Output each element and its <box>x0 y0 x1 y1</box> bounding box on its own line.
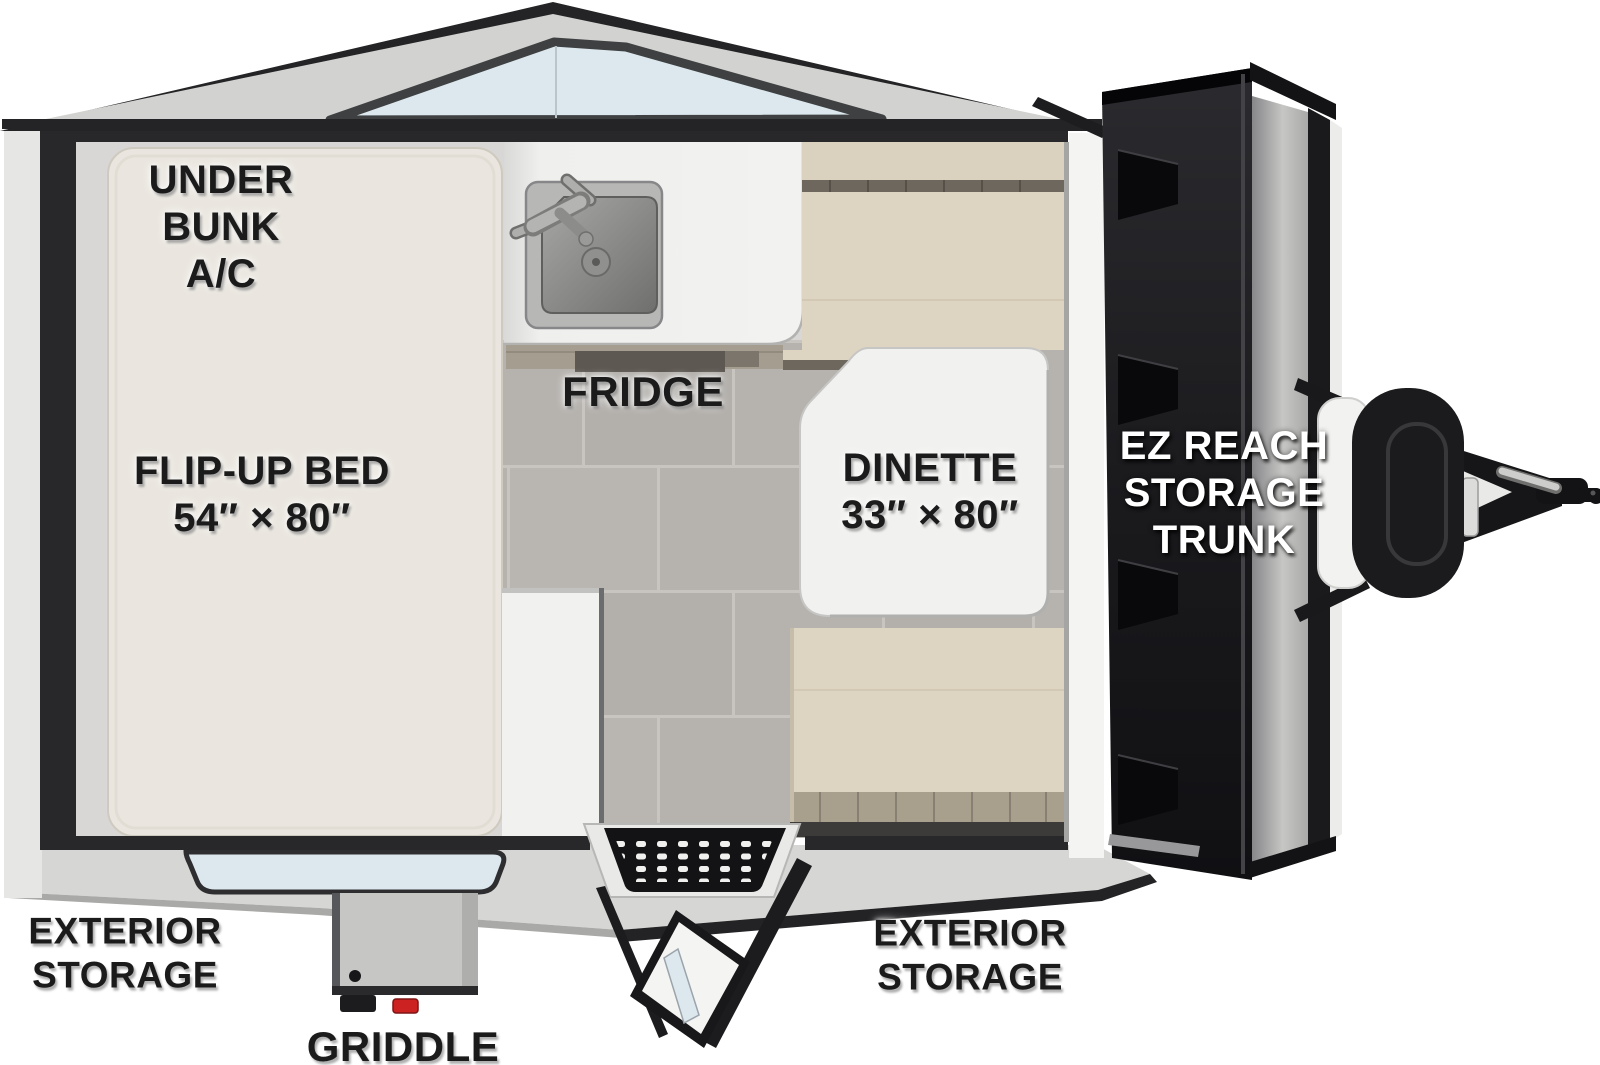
griddle-right-shade <box>462 893 478 993</box>
tongue-jack <box>1462 478 1478 536</box>
roof <box>0 2 1104 131</box>
kitchen <box>504 128 803 372</box>
dinette-bench-bottom <box>790 628 1064 837</box>
cabinet <box>502 588 604 836</box>
griddle-foot <box>340 995 376 1012</box>
label-flip-up-bed: FLIP-UP BED 54″ × 80″ <box>134 448 390 542</box>
label-exterior-storage-left: EXTERIOR STORAGE <box>28 909 221 996</box>
griddle-knob-icon <box>349 970 361 982</box>
label-fridge: FRIDGE <box>562 367 724 417</box>
bottom-wall-left <box>40 836 590 850</box>
griddle-left-edge <box>332 893 340 993</box>
label-griddle: GRIDDLE <box>307 1022 500 1065</box>
left-wall <box>40 128 76 844</box>
label-exterior-storage-right: EXTERIOR STORAGE <box>873 911 1066 998</box>
sink-drain-hole <box>592 258 600 266</box>
left-outer-shell <box>4 128 42 898</box>
fridge-vent-step <box>725 351 759 367</box>
label-dinette: DINETTE 33″ × 80″ <box>841 445 1018 539</box>
hitch-ball-highlight <box>1591 491 1596 496</box>
entry-doorway <box>584 824 800 897</box>
griddle-bottom-edge <box>332 986 478 995</box>
label-under-bunk-ac: UNDER BUNK A/C <box>149 157 294 299</box>
griddle-unit <box>332 893 478 1013</box>
cabinet-top-shadow <box>502 588 604 593</box>
floorplan-canvas: UNDER BUNK A/C FLIP-UP BED 54″ × 80″ FRI… <box>0 0 1600 1065</box>
step-mat-dots <box>614 836 774 882</box>
cabinet-top <box>502 588 604 836</box>
dinette-bench-top <box>783 142 1064 370</box>
tongue-hitch <box>1294 378 1600 622</box>
label-ez-reach-storage-trunk: EZ REACH STORAGE TRUNK <box>1120 423 1328 565</box>
roof-front-edge <box>2 119 1102 129</box>
right-wall-seam <box>1064 142 1069 842</box>
side-window-icon <box>186 852 504 892</box>
bottom-wall-right <box>805 836 1068 850</box>
griddle-valve-red <box>393 999 418 1013</box>
right-wall-band <box>1069 133 1104 858</box>
cabinet-edge <box>599 588 604 836</box>
